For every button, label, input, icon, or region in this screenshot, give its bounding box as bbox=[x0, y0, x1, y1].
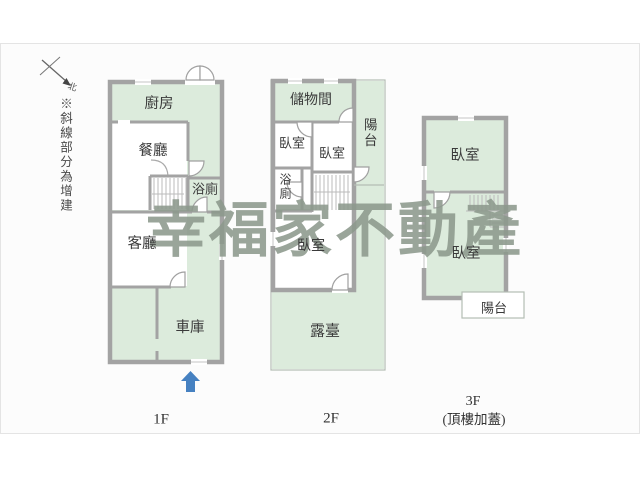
room-label-bedroom-north-3f: 臥室 bbox=[451, 149, 480, 164]
room-label-living: 客廳 bbox=[128, 237, 157, 252]
room-label-terrace: 露臺 bbox=[310, 325, 340, 340]
room-label-bedroom-center: 臥室 bbox=[319, 147, 345, 160]
entrance-arrow-icon bbox=[181, 371, 200, 392]
caption-1f: 1F bbox=[153, 412, 169, 429]
room-label-bathroom-2f: 浴廁 bbox=[279, 173, 291, 201]
room-label-bedroom-south-2f: 臥室 bbox=[297, 240, 325, 254]
caption-2f: 2F bbox=[323, 411, 339, 428]
annotation-note: ※斜線部分為增建 bbox=[56, 97, 75, 213]
room-label-balcony-3f: 陽台 bbox=[481, 302, 507, 315]
room-label-bathroom-1f: 浴廁 bbox=[192, 183, 218, 196]
room-label-dining: 餐廳 bbox=[139, 144, 168, 159]
room-label-balcony-2f: 陽台 bbox=[362, 118, 376, 149]
room-label-garage: 車庫 bbox=[176, 321, 205, 336]
room-label-kitchen: 廚房 bbox=[145, 97, 174, 112]
room-label-bedroom-south-3f: 臥室 bbox=[452, 247, 481, 262]
room-label-bedroom-left: 臥室 bbox=[279, 137, 305, 150]
room-label-storage: 儲物間 bbox=[290, 94, 332, 108]
caption-3f-note: (頂樓加蓋) bbox=[443, 408, 506, 428]
